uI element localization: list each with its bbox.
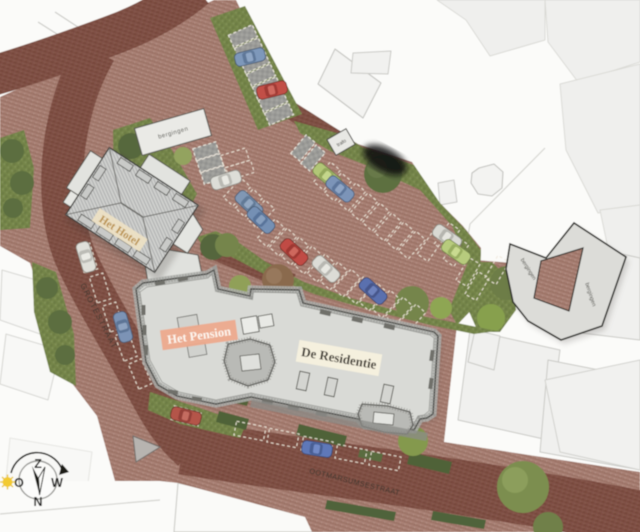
svg-text:N: N [33, 495, 42, 509]
svg-text:Z: Z [34, 457, 42, 471]
svg-text:O: O [14, 476, 24, 490]
svg-text:W: W [51, 476, 63, 490]
